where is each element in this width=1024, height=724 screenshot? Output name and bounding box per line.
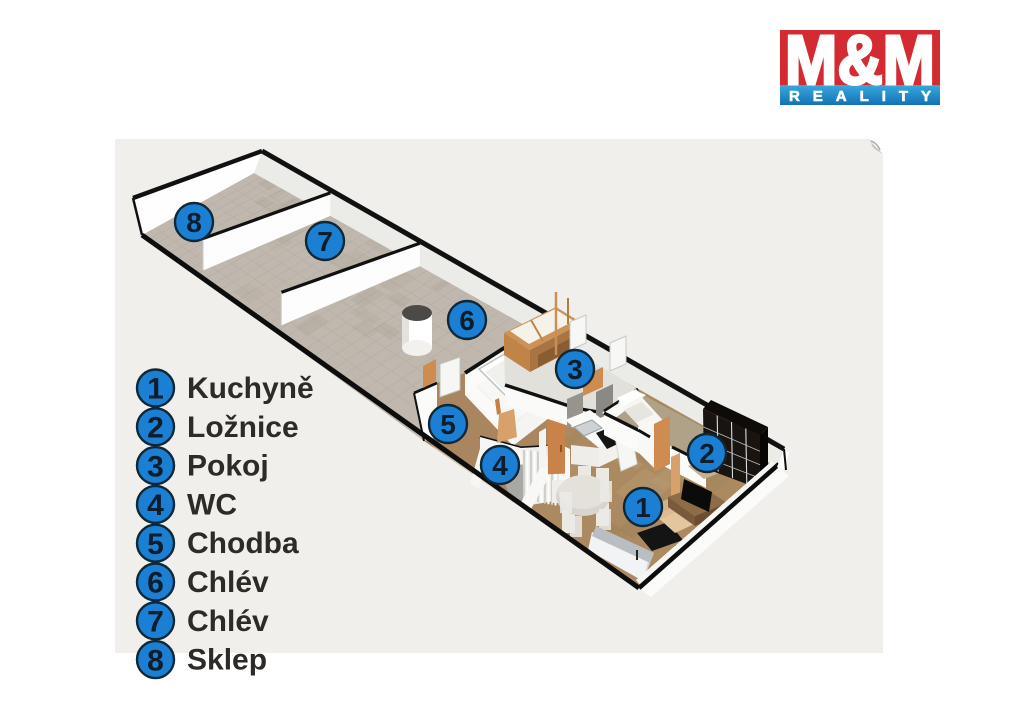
svg-text:1: 1 [147,373,164,406]
svg-text:7: 7 [147,605,164,638]
svg-text:Kuchyně: Kuchyně [187,372,314,405]
svg-text:6: 6 [147,567,164,600]
svg-text:5: 5 [440,409,456,440]
svg-text:1: 1 [635,492,651,523]
svg-text:WC: WC [187,488,237,521]
svg-text:6: 6 [459,305,475,336]
svg-text:3: 3 [567,354,583,385]
svg-text:4: 4 [147,489,164,522]
svg-text:2: 2 [147,411,164,444]
svg-text:4: 4 [492,450,508,481]
svg-text:3: 3 [147,450,164,483]
svg-text:8: 8 [186,207,202,238]
svg-text:Chodba: Chodba [187,527,299,560]
svg-text:7: 7 [317,226,333,257]
svg-text:5: 5 [147,528,164,561]
svg-text:Ložnice: Ložnice [187,411,299,444]
svg-text:Chlév: Chlév [187,566,269,599]
svg-text:2: 2 [699,438,715,469]
svg-text:Sklep: Sklep [187,644,267,677]
svg-text:8: 8 [147,644,164,677]
svg-text:Pokoj: Pokoj [187,450,269,483]
svg-text:Chlév: Chlév [187,605,269,638]
